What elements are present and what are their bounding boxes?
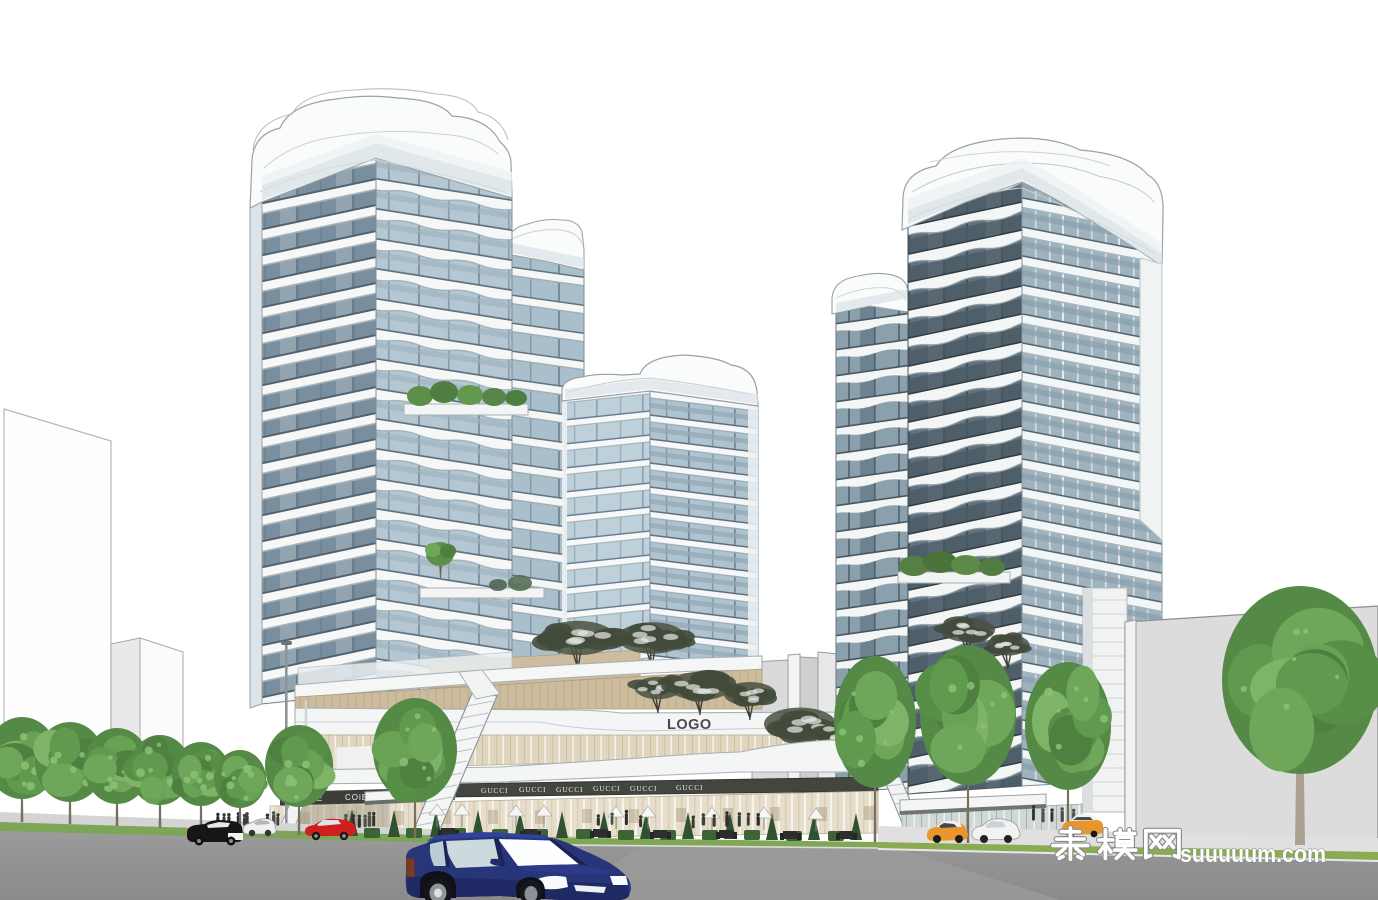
- svg-text:GUCCI: GUCCI: [676, 783, 703, 792]
- svg-text:suuuuum.com: suuuuum.com: [1180, 841, 1326, 868]
- svg-text:GUCCI: GUCCI: [556, 785, 583, 794]
- svg-text:GUCCI: GUCCI: [630, 784, 657, 793]
- svg-text:GUCCI: GUCCI: [593, 784, 620, 793]
- svg-text:GUCCI: GUCCI: [481, 786, 508, 795]
- svg-text:GUCCI: GUCCI: [519, 785, 546, 794]
- svg-text:LOGO: LOGO: [667, 717, 712, 733]
